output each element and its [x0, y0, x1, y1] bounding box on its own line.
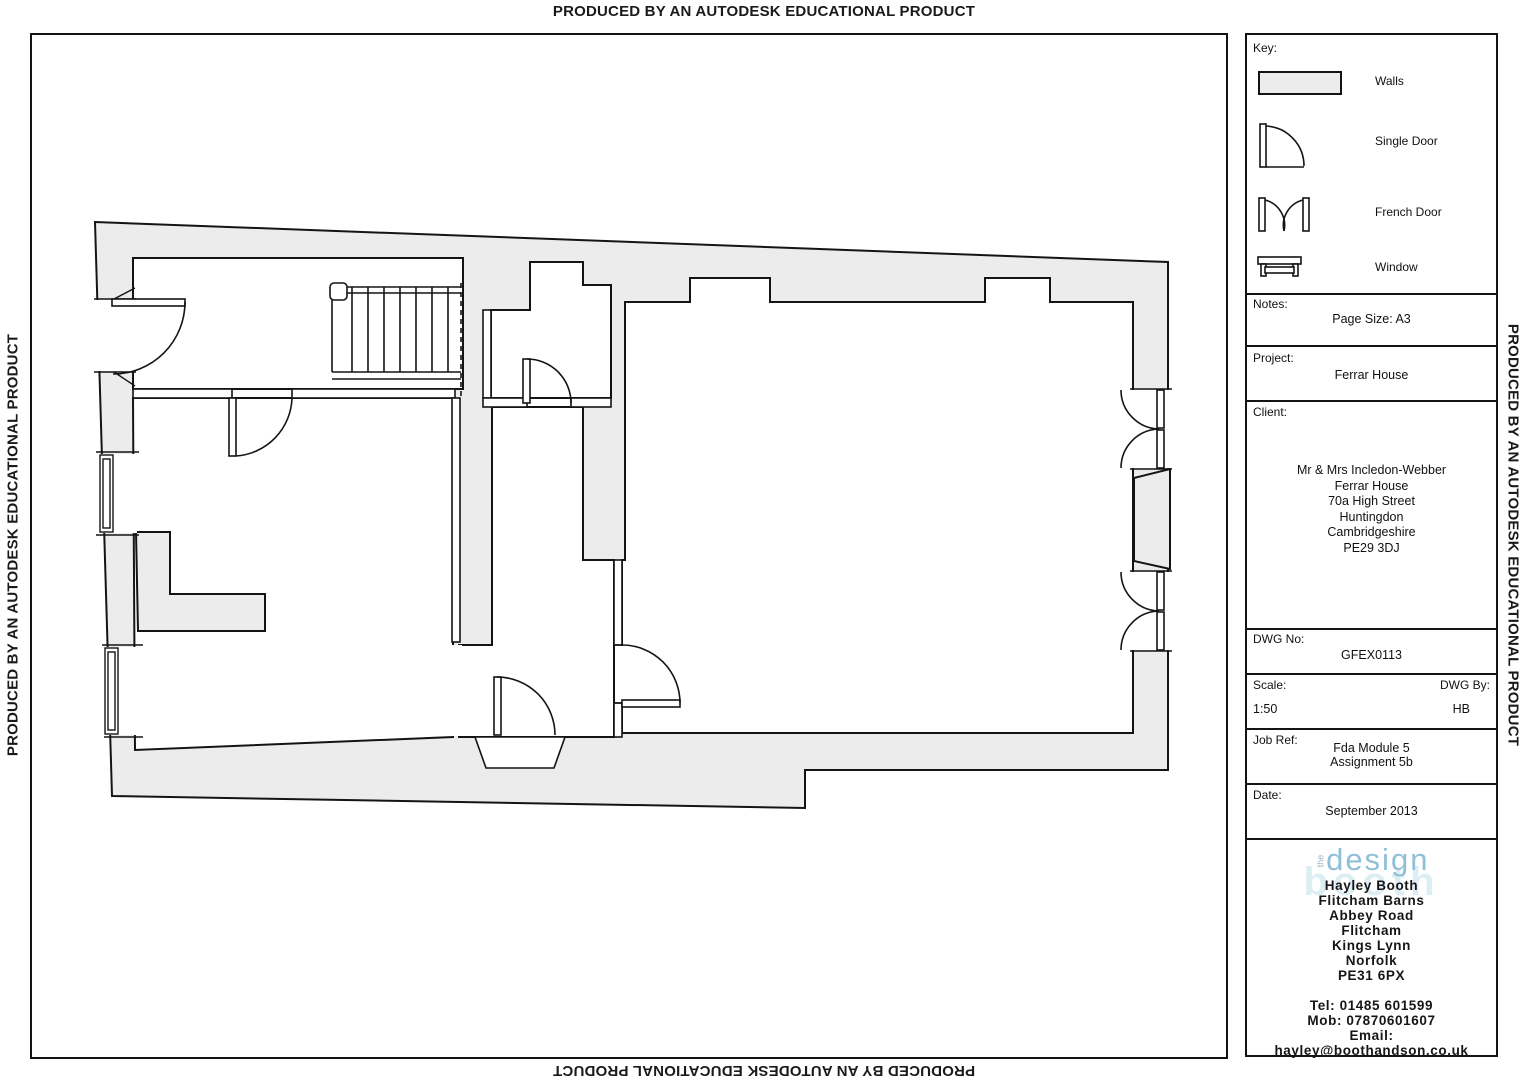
designer-email: hayley@boothandson.co.uk	[1245, 1043, 1498, 1058]
french-door-icon	[1256, 196, 1312, 236]
client-line: 70a High Street	[1245, 494, 1498, 510]
dwg-by-label: DWG By:	[1380, 678, 1490, 692]
designer-tel: Tel: 01485 601599	[1245, 998, 1498, 1013]
key-title: Key:	[1253, 41, 1277, 55]
walls-swatch-icon	[1258, 71, 1342, 95]
drawing-sheet: PRODUCED BY AN AUTODESK EDUCATIONAL PROD…	[0, 0, 1528, 1080]
rear-porch	[475, 737, 565, 768]
divider	[1245, 400, 1498, 402]
single-door-icon	[1256, 121, 1306, 171]
design-logo: thedesign	[1245, 842, 1498, 878]
scale-label: Scale:	[1253, 678, 1286, 692]
client-line: Mr & Mrs Incledon-Webber	[1245, 463, 1498, 479]
right-wall-pier	[1134, 469, 1170, 569]
key-item-window: Window	[1375, 260, 1418, 274]
client-line: PE29 3DJ	[1245, 541, 1498, 557]
job-ref-line: Assignment 5b	[1245, 755, 1498, 769]
divider	[1245, 345, 1498, 347]
designer-address: Hayley Booth Flitcham Barns Abbey Road F…	[1245, 878, 1498, 983]
divider	[1245, 628, 1498, 630]
designer-line: Flitcham Barns	[1245, 893, 1498, 908]
designer-line: Norfolk	[1245, 953, 1498, 968]
divider	[1245, 728, 1498, 730]
client-line: Huntingdon	[1245, 510, 1498, 526]
client-line: Cambridgeshire	[1245, 525, 1498, 541]
designer-contact: Tel: 01485 601599 Mob: 07870601607 Email…	[1245, 998, 1498, 1058]
designer-line: PE31 6PX	[1245, 968, 1498, 983]
divider	[1245, 838, 1498, 840]
job-ref-line: Fda Module 5	[1245, 741, 1498, 755]
designer-block: booth thedesign Hayley Booth Flitcham Ba…	[1245, 842, 1498, 1058]
notes-value: Page Size: A3	[1245, 312, 1498, 326]
window-icon	[1256, 255, 1304, 281]
notes-label: Notes:	[1253, 297, 1288, 311]
divider	[1245, 673, 1498, 675]
staircase	[330, 283, 461, 397]
designer-line: Flitcham	[1245, 923, 1498, 938]
client-label: Client:	[1253, 405, 1287, 419]
date-label: Date:	[1253, 788, 1282, 802]
project-value: Ferrar House	[1245, 368, 1498, 382]
designer-line: Hayley Booth	[1245, 878, 1498, 893]
designer-mob: Mob: 07870601607	[1245, 1013, 1498, 1028]
key-item-walls: Walls	[1375, 74, 1404, 88]
front-door	[112, 299, 185, 306]
project-label: Project:	[1253, 351, 1294, 365]
key-item-single-door: Single Door	[1375, 134, 1438, 148]
client-address: Mr & Mrs Incledon-Webber Ferrar House 70…	[1245, 463, 1498, 556]
designer-email-label: Email:	[1245, 1028, 1498, 1043]
key-item-french-door: French Door	[1375, 205, 1442, 219]
logo-the: the	[1315, 855, 1325, 868]
job-ref-value: Fda Module 5 Assignment 5b	[1245, 741, 1498, 769]
client-line: Ferrar House	[1245, 479, 1498, 495]
dwg-no-label: DWG No:	[1253, 632, 1304, 646]
dwg-by-value: HB	[1380, 702, 1470, 716]
logo-design: design	[1326, 842, 1429, 877]
designer-line: Abbey Road	[1245, 908, 1498, 923]
scale-value: 1:50	[1253, 702, 1277, 716]
date-value: September 2013	[1245, 804, 1498, 818]
divider	[1245, 293, 1498, 295]
dwg-no-value: GFEX0113	[1245, 648, 1498, 662]
designer-line: Kings Lynn	[1245, 938, 1498, 953]
divider	[1245, 783, 1498, 785]
chimney-breast	[136, 532, 265, 631]
